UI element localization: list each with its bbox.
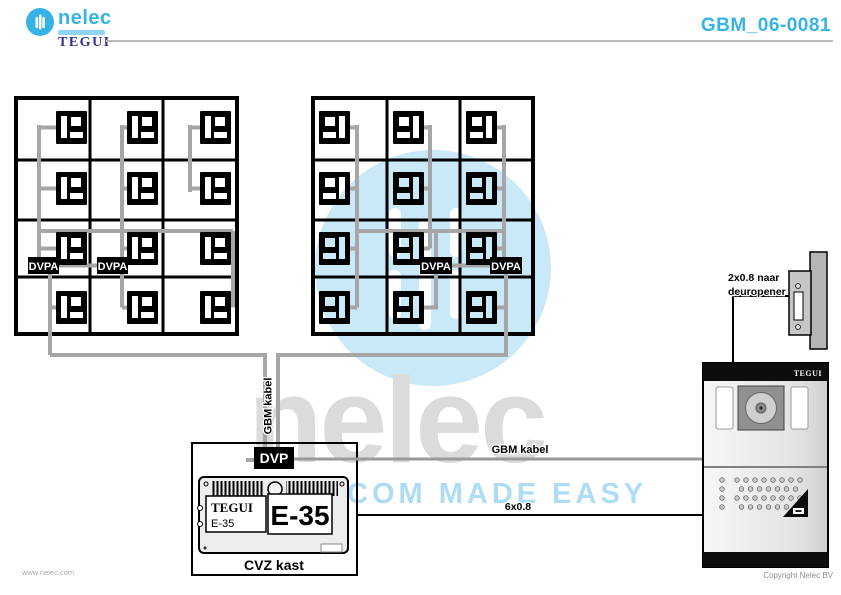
intercom-phone-icon [200, 232, 231, 265]
unit-model-large-label: E-35 [270, 500, 329, 531]
intercom-phone-icon [127, 291, 158, 324]
intercom-phone-icon [127, 111, 158, 144]
intercom-phone-icon [393, 172, 424, 205]
opener-wire [733, 296, 789, 363]
intercom-phone-icon [466, 291, 497, 324]
intercom-phone-icon [200, 172, 231, 205]
dvpa-label: DVPA [421, 261, 451, 273]
intercom-phone-icon [56, 291, 87, 324]
dvpa-boxes: DVPA DVPA DVPA DVPA [28, 257, 522, 274]
watermark-tagline-text: COM MADE EASY [347, 478, 647, 510]
intercom-phone-icon [466, 111, 497, 144]
intercom-phone-icon [393, 111, 424, 144]
dvpa-label: DVPA [29, 261, 59, 273]
intercom-phone-icon [200, 291, 231, 324]
wiring-diagram: nelec COM MADE EASY [0, 0, 841, 595]
riser-cable-label: GBM kabel [263, 378, 275, 435]
intercom-phone-icon [127, 172, 158, 205]
intercom-phone-icon [393, 232, 424, 265]
intercom-phone-icon [466, 172, 497, 205]
intercom-phone-icon [200, 111, 231, 144]
door-wire-label: 6x0.8 [505, 501, 531, 513]
opener-label-line1: 2x0.8 naar [728, 272, 779, 284]
website-url: www.nelec.com [22, 568, 74, 577]
opener-label-line2: deuropener [728, 286, 786, 298]
dvp-label: DVP [260, 450, 289, 466]
door-cable-label: GBM kabel [492, 444, 549, 456]
dvpa-label: DVPA [98, 261, 128, 273]
intercom-phone-icon [56, 111, 87, 144]
intercom-phone-icon [393, 291, 424, 324]
vent-slots [212, 481, 264, 496]
panel-brand-label: TEGUI [794, 369, 822, 378]
door-entry-panel: TEGUI [703, 363, 828, 567]
intercom-phone-icon [319, 291, 350, 324]
e35-unit: TEGUI E-35 E-35 [198, 477, 349, 553]
dvpa-label: DVPA [491, 261, 521, 273]
cabinet-label: CVZ kast [244, 557, 304, 573]
intercom-phone-icon [56, 232, 87, 265]
intercom-phone-icon [127, 232, 158, 265]
intercom-phone-icon [319, 111, 350, 144]
name-plate [791, 387, 808, 429]
intercom-phone-icon [56, 172, 87, 205]
unit-brand-label: TEGUI [211, 500, 253, 515]
watermark: nelec COM MADE EASY [248, 150, 647, 510]
copyright-text: Copyright Nelec BV [763, 571, 833, 580]
name-plate [716, 387, 733, 429]
door-opener: 2x0.8 naar deuropener [728, 252, 827, 363]
unit-model-small-label: E-35 [211, 518, 234, 530]
intercom-phone-icon [319, 232, 350, 265]
intercom-phone-icon [319, 172, 350, 205]
